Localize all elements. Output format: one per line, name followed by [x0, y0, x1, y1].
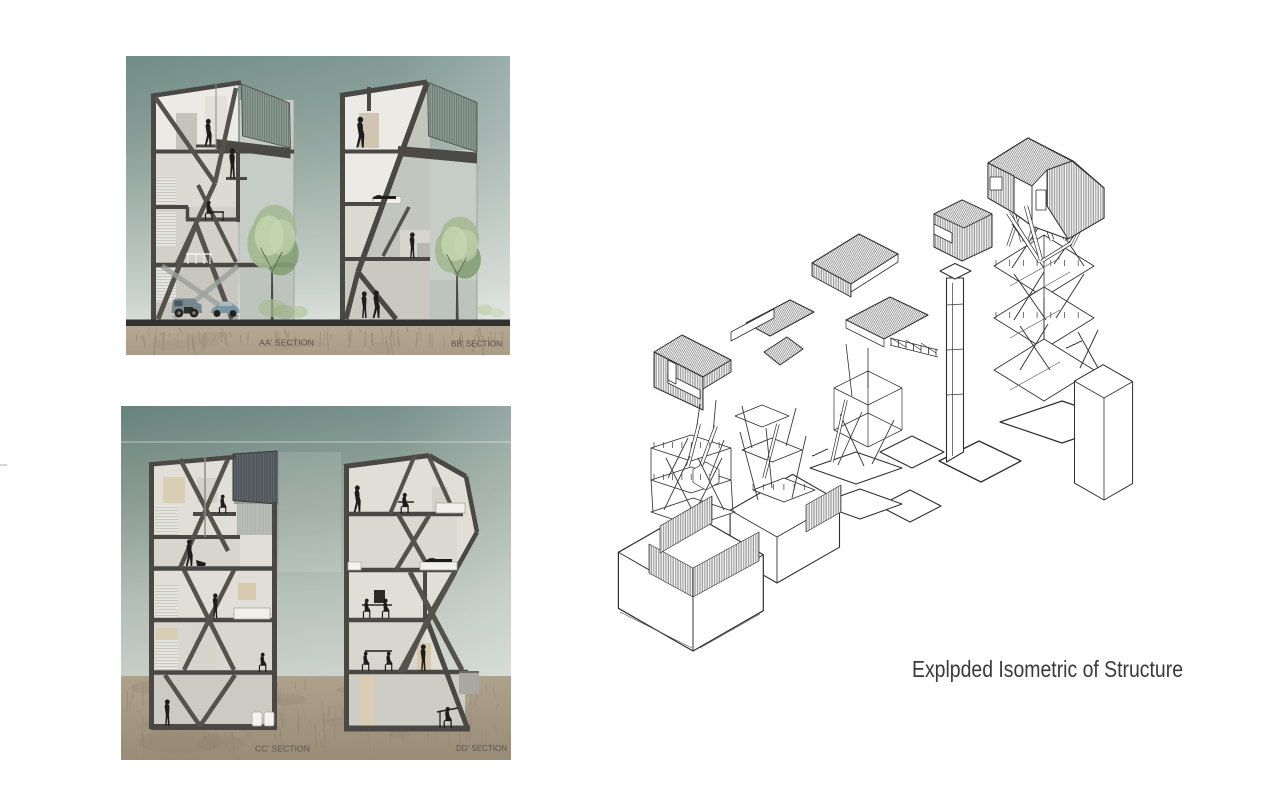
svg-text:DD' SECTION: DD' SECTION	[456, 744, 507, 753]
svg-text:CC' SECTION: CC' SECTION	[255, 745, 310, 754]
svg-text:BB' SECTION: BB' SECTION	[451, 340, 502, 349]
svg-text:AA' SECTION: AA' SECTION	[259, 339, 314, 348]
svg-text:Explpded Isometric of Structur: Explpded Isometric of Structure	[912, 656, 1183, 682]
